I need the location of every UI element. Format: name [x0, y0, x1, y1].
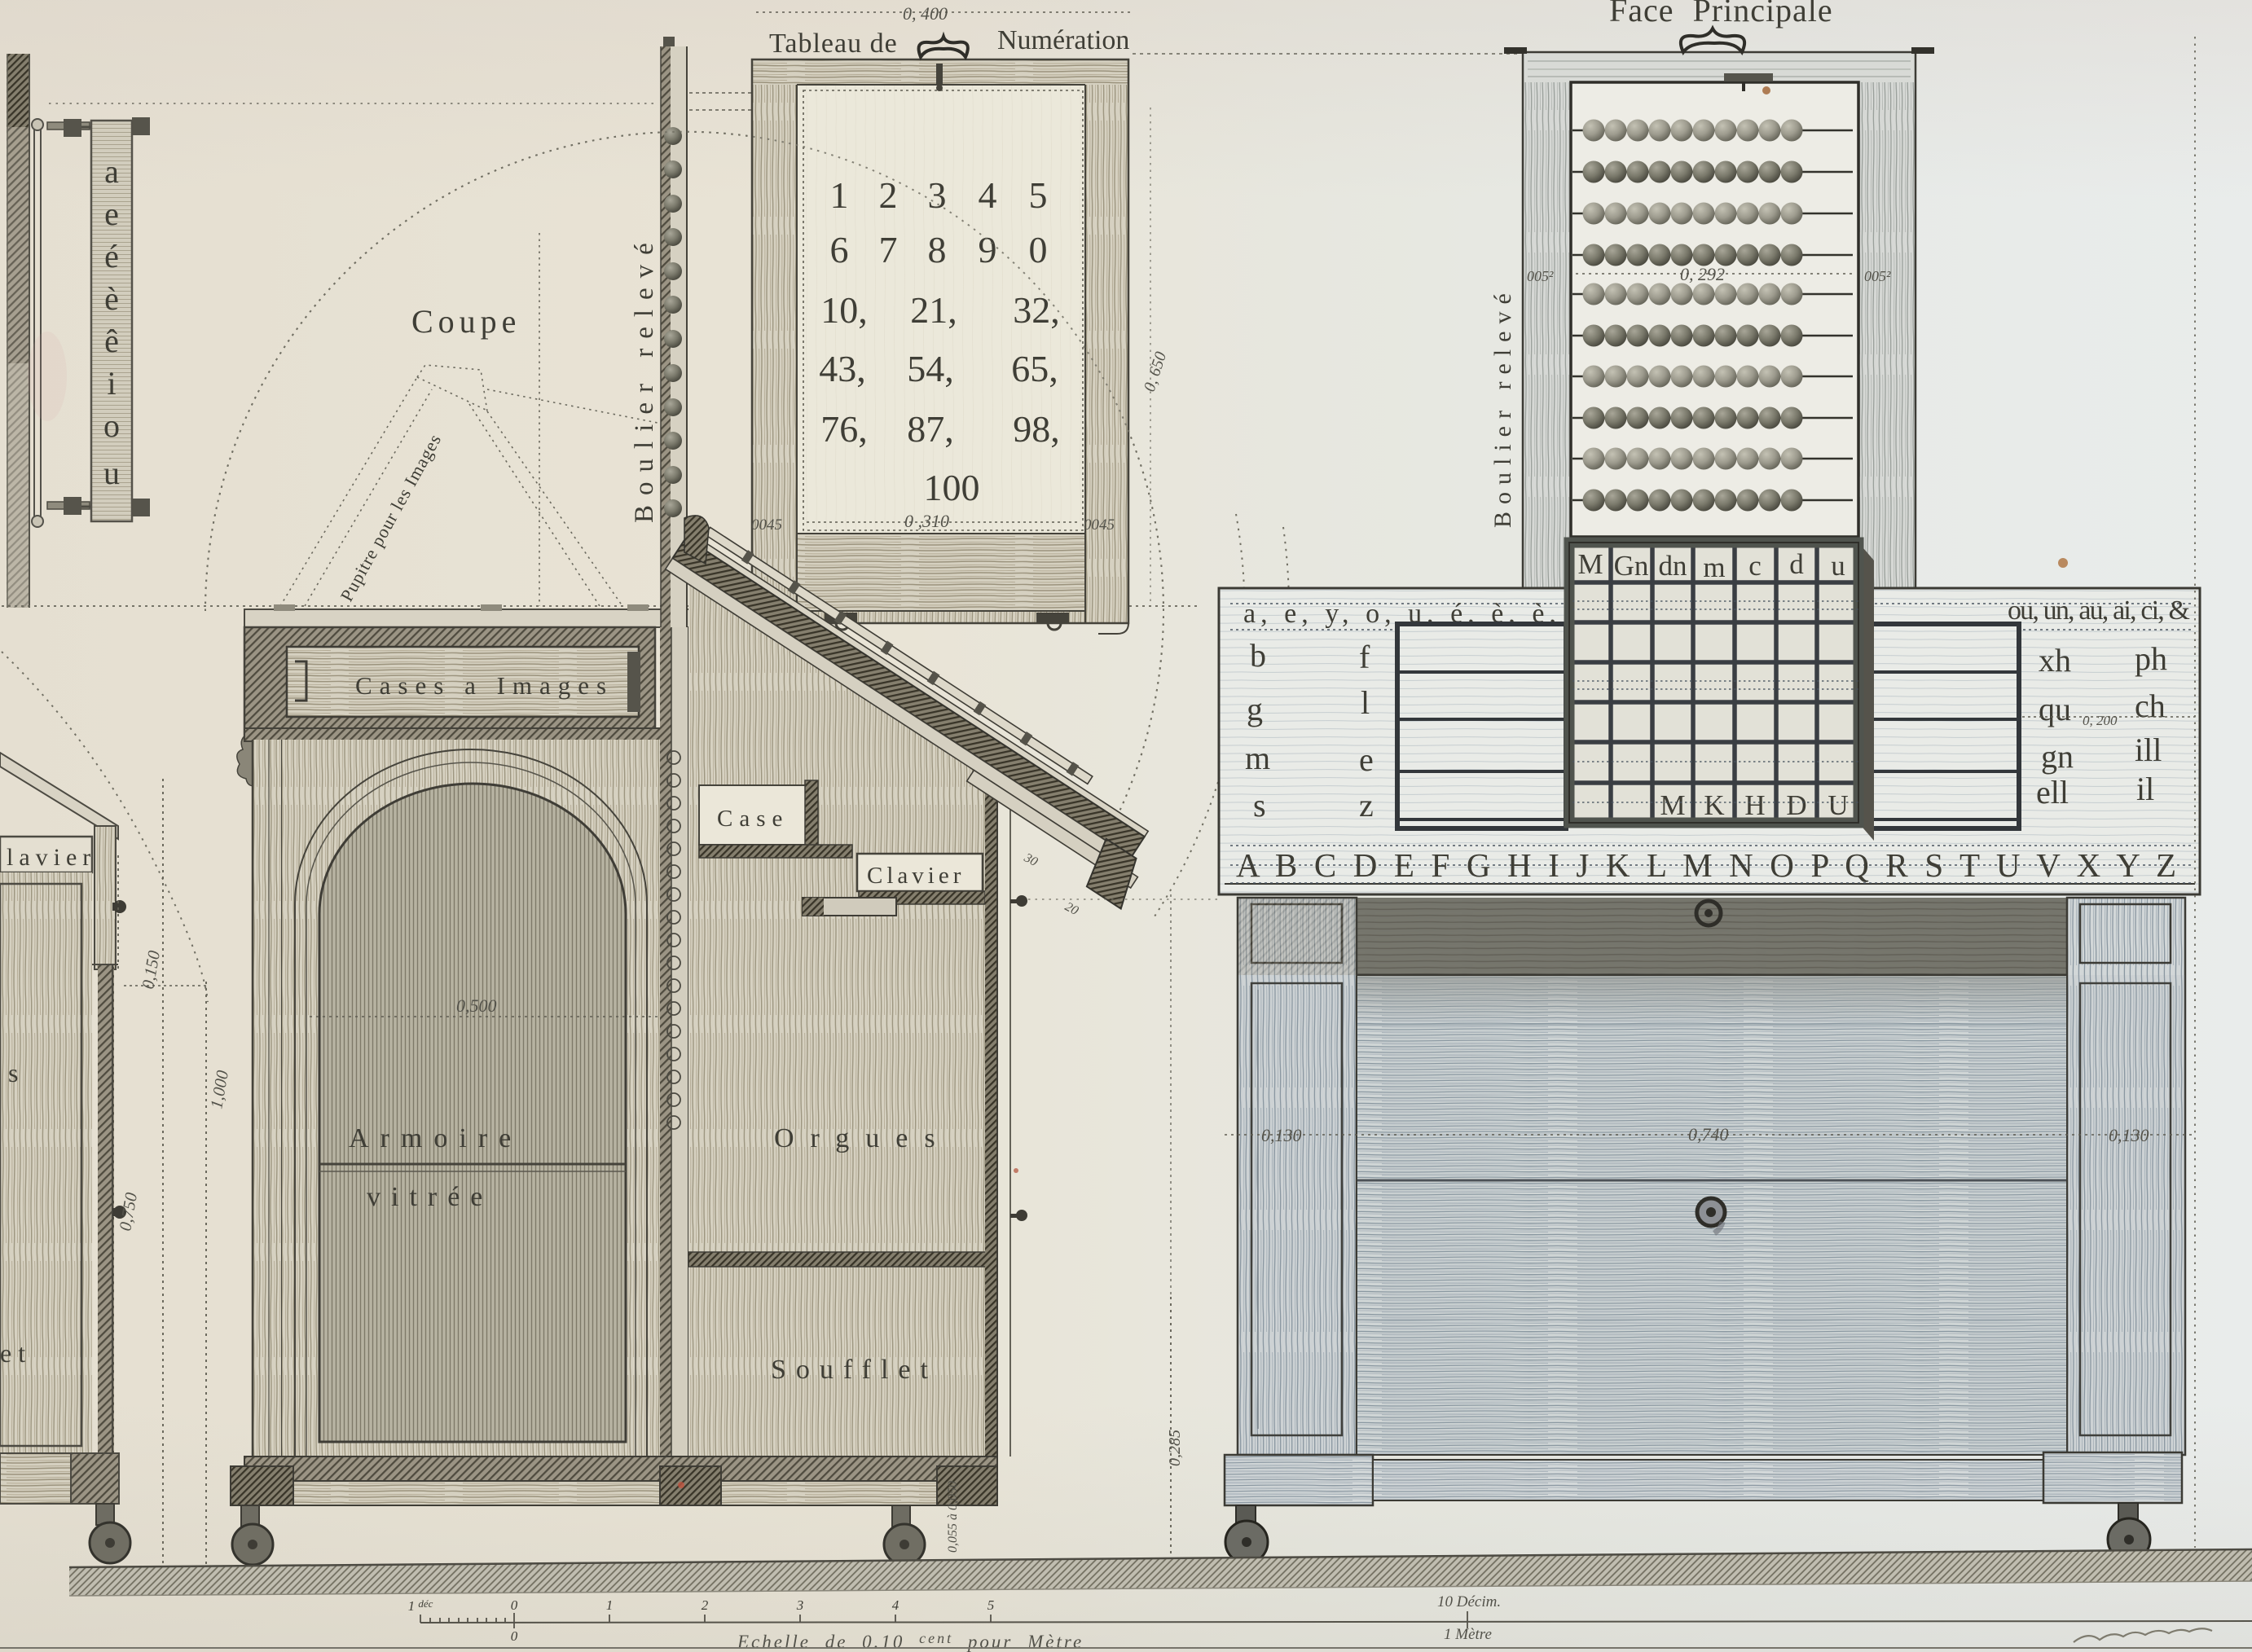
- svg-text:Numération: Numération: [997, 25, 1129, 55]
- svg-text:a: a: [104, 153, 119, 190]
- svg-text:7: 7: [879, 229, 898, 270]
- svg-text:U: U: [1828, 789, 1848, 821]
- svg-text:43,: 43,: [819, 348, 866, 389]
- svg-text:M: M: [1577, 548, 1603, 580]
- svg-text:dn: dn: [1659, 550, 1687, 582]
- svg-text:1: 1: [606, 1597, 614, 1613]
- svg-text:0: 0: [1029, 229, 1048, 270]
- svg-text:0,130: 0,130: [2109, 1125, 2149, 1145]
- svg-text:é: é: [104, 238, 119, 275]
- svg-text:d: d: [1789, 548, 1804, 580]
- svg-text:8: 8: [928, 229, 947, 270]
- svg-text:3: 3: [796, 1597, 804, 1613]
- svg-text:0045: 0045: [1084, 516, 1115, 534]
- svg-text:Face Principale: Face Principale: [1609, 0, 1833, 29]
- svg-text:Clavier: Clavier: [867, 863, 965, 889]
- svg-text:0,130: 0,130: [1261, 1125, 1302, 1145]
- svg-text:vitrée: vitrée: [367, 1182, 493, 1212]
- svg-text:0: 0: [511, 1597, 518, 1613]
- svg-text:Boulier relevé: Boulier relevé: [1489, 286, 1516, 528]
- svg-text:K: K: [1704, 789, 1724, 821]
- svg-text:0 ,310: 0 ,310: [904, 511, 949, 531]
- svg-text:M: M: [1660, 789, 1685, 821]
- svg-text:Tableau de: Tableau de: [769, 29, 898, 59]
- svg-text:H: H: [1744, 789, 1765, 821]
- svg-text:87,: 87,: [907, 408, 954, 450]
- svg-text:l: l: [1361, 684, 1370, 721]
- svg-text:0,740: 0,740: [1688, 1124, 1729, 1145]
- svg-text:2: 2: [702, 1597, 709, 1613]
- svg-text:gn: gn: [2041, 738, 2074, 775]
- svg-text:1 Mètre: 1 Mètre: [1444, 1626, 1492, 1643]
- svg-text:65,: 65,: [1011, 348, 1058, 389]
- svg-text:f: f: [1359, 639, 1370, 675]
- svg-text:lavier: lavier: [7, 844, 96, 871]
- svg-text:005²: 005²: [1527, 268, 1554, 284]
- svg-text:005²: 005²: [1864, 268, 1891, 284]
- svg-text:ch: ch: [2135, 688, 2166, 724]
- svg-text:0, 292: 0, 292: [1680, 264, 1725, 284]
- svg-text:è: è: [104, 280, 119, 317]
- svg-text:ill: ill: [2135, 732, 2162, 768]
- svg-text:0,285: 0,285: [1166, 1430, 1184, 1466]
- svg-text:e: e: [104, 196, 119, 232]
- svg-text:u: u: [1831, 550, 1845, 582]
- svg-text:6: 6: [830, 229, 849, 270]
- svg-text:o: o: [103, 407, 120, 444]
- svg-text:Orgues: Orgues: [774, 1123, 952, 1153]
- svg-text:100: 100: [924, 467, 980, 508]
- svg-text:ê: ê: [104, 323, 119, 359]
- svg-text:98,: 98,: [1013, 408, 1060, 450]
- svg-text:m: m: [1245, 740, 1270, 776]
- svg-text:Cases a Images: Cases a Images: [355, 671, 614, 700]
- svg-text:ell: ell: [2036, 774, 2069, 811]
- svg-text:e: e: [1359, 741, 1374, 778]
- svg-text:s: s: [1253, 787, 1266, 824]
- svg-text:et: et: [0, 1338, 32, 1368]
- svg-text:0,055 à 0,050: 0,055 à 0,050: [946, 1481, 960, 1553]
- svg-text:0, 400: 0, 400: [903, 3, 948, 24]
- svg-text:10 Décim.: 10 Décim.: [1437, 1593, 1501, 1610]
- svg-text:10,: 10,: [820, 289, 868, 331]
- svg-text:z: z: [1359, 787, 1374, 824]
- svg-text:Coupe: Coupe: [411, 303, 521, 340]
- svg-text:76,: 76,: [820, 408, 868, 450]
- svg-text:u: u: [103, 455, 120, 491]
- svg-text:0, 200: 0, 200: [2083, 713, 2118, 728]
- svg-text:4: 4: [892, 1597, 899, 1613]
- svg-text:ph: ph: [2135, 640, 2167, 677]
- svg-text:3: 3: [928, 174, 947, 216]
- svg-text:c: c: [1748, 550, 1762, 582]
- svg-text:qu: qu: [2039, 691, 2071, 727]
- svg-text:Boulier relevé: Boulier relevé: [630, 233, 659, 523]
- svg-text:Case: Case: [717, 806, 789, 832]
- svg-text:Armoire: Armoire: [349, 1123, 522, 1153]
- svg-text:5: 5: [987, 1597, 995, 1613]
- svg-text:54,: 54,: [907, 348, 954, 389]
- svg-text:s: s: [8, 1058, 18, 1087]
- svg-text:il: il: [2136, 771, 2154, 807]
- svg-text:Soufflet: Soufflet: [771, 1355, 938, 1385]
- svg-text:Gn: Gn: [1614, 550, 1649, 582]
- svg-text:32,: 32,: [1013, 289, 1060, 331]
- svg-text:2: 2: [879, 174, 898, 216]
- svg-text:D: D: [1786, 789, 1806, 821]
- svg-text:0045: 0045: [751, 516, 782, 534]
- svg-text:g: g: [1247, 691, 1263, 727]
- svg-text:5: 5: [1029, 174, 1048, 216]
- svg-text:m: m: [1703, 551, 1725, 583]
- svg-text:4: 4: [979, 174, 997, 216]
- svg-text:b: b: [1250, 637, 1266, 674]
- svg-text:i: i: [107, 365, 116, 402]
- svg-text:1: 1: [830, 174, 849, 216]
- svg-text:21,: 21,: [910, 289, 957, 331]
- svg-text:0,500: 0,500: [456, 995, 497, 1016]
- svg-text:ou, un, au, ai, ci, &: ou, un, au, ai, ci, &: [2008, 595, 2190, 626]
- svg-text:xh: xh: [2039, 642, 2071, 679]
- svg-text:9: 9: [979, 229, 997, 270]
- svg-text:0: 0: [511, 1628, 518, 1644]
